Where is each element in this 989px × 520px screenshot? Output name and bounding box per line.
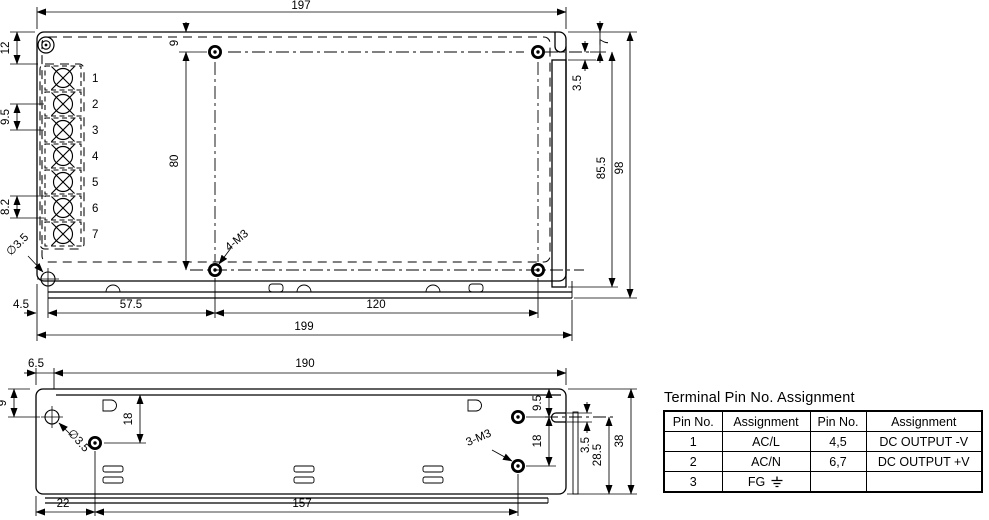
pin-no-cell: 1 [664, 432, 722, 452]
hook-tab [469, 284, 483, 292]
d-hole [468, 400, 482, 411]
vent-slot [423, 477, 443, 483]
corner-hole-label: ∅3.5 [4, 231, 31, 258]
header-pin-no: Pin No. [810, 411, 866, 432]
dim-hole-gap-right: 18 [532, 435, 544, 448]
mechanical-drawing-page: 1 2 3 4 5 6 7 197 12 [0, 0, 989, 520]
dim-body-height: 85.5 [596, 157, 608, 179]
dim-hole-span-v: 80 [169, 155, 181, 168]
terminal-number: 7 [92, 229, 98, 241]
terminal-number: 4 [92, 151, 99, 163]
pin-no-cell: 6,7 [810, 452, 866, 472]
vent-slot [294, 477, 314, 483]
bracket-strip [573, 412, 578, 494]
dim-hole-bottom: 28.5 [592, 444, 604, 466]
dim-hole-left: 57.5 [120, 299, 142, 311]
terminal-number: 5 [92, 177, 98, 189]
dim-width-bottom: 199 [294, 321, 313, 333]
pin-assignment-table: Terminal Pin No. Assignment Pin No. Assi… [663, 390, 987, 493]
dim-hole-span-h: 120 [366, 299, 385, 311]
earth-ground-icon [770, 476, 784, 488]
tab-bump [426, 285, 440, 292]
dim-terminal-pitch-2: 8.2 [0, 199, 12, 215]
edge-slot-end [552, 413, 557, 422]
terminal-number: 2 [92, 99, 98, 111]
pin-no-cell: 3 [664, 472, 722, 493]
assignment-cell: FG [722, 472, 810, 493]
dim-hole-top: 9 [169, 40, 181, 46]
header-pin-no: Pin No. [664, 411, 722, 432]
case-outline [37, 32, 566, 281]
pin-table-grid: Pin No. Assignment Pin No. Assignment 1 … [663, 410, 983, 493]
pin-table-row: 3 FG [664, 472, 982, 493]
dim-width-top: 197 [291, 0, 310, 12]
terminal-number: 6 [92, 203, 98, 215]
fg-label: FG [748, 475, 765, 489]
dim-left-top: 12 [0, 42, 12, 55]
assignment-cell: AC/L [722, 432, 810, 452]
vent-slot [294, 466, 314, 472]
pin-table-row: 2 AC/N 6,7 DC OUTPUT +V [664, 452, 982, 472]
vent-slot [103, 466, 123, 472]
dim-hole-top-right: 9.5 [532, 395, 544, 411]
top-view: 1 2 3 4 5 6 7 197 12 [0, 0, 637, 341]
vent-slot [103, 477, 123, 483]
dim-height: 38 [614, 435, 626, 448]
assignment-cell [866, 472, 982, 493]
side-view-body [36, 389, 614, 503]
terminal-number: 1 [92, 73, 98, 85]
dim-terminal-pitch: 9.5 [0, 109, 12, 125]
pin-no-cell [810, 472, 866, 493]
header-assignment: Assignment [866, 411, 982, 432]
dim-notch-depth: 7 [599, 39, 611, 45]
d-hole [103, 400, 117, 411]
pin-no-cell: 4,5 [810, 432, 866, 452]
tab-bump [297, 285, 311, 292]
assignment-cell: DC OUTPUT +V [866, 452, 982, 472]
vent-slot [423, 466, 443, 472]
hook-tab [269, 284, 283, 292]
mounting-holes-label: 4-M3 [223, 228, 251, 254]
tab-bump [106, 285, 120, 292]
dim-notch-gap: 3.5 [572, 75, 584, 91]
side-view: 6.5 190 9 18 ∅3.5 3-M3 9.5 18 [0, 358, 637, 516]
notch-slot-end [555, 47, 566, 53]
pin-no-cell: 2 [664, 452, 722, 472]
pin-table-header-row: Pin No. Assignment Pin No. Assignment [664, 411, 982, 432]
dim-lip: 6.5 [28, 358, 44, 370]
dim-slot: 3.5 [580, 437, 592, 453]
dim-hole-top-left: 9 [0, 400, 9, 406]
dim-width: 190 [295, 358, 314, 370]
dim-hole-span: 157 [292, 498, 311, 510]
pin-table-row: 1 AC/L 4,5 DC OUTPUT -V [664, 432, 982, 452]
top-view-body: 1 2 3 4 5 6 7 [37, 32, 590, 298]
mounting-holes-label: 3-M3 [464, 428, 493, 449]
dim-foot: 4.5 [13, 299, 29, 311]
pin-table-title: Terminal Pin No. Assignment [664, 390, 987, 406]
hole-dia-label: ∅3.5 [65, 427, 91, 454]
assignment-cell: AC/N [722, 452, 810, 472]
assignment-cell: DC OUTPUT -V [866, 432, 982, 452]
case-inner-dashed [42, 37, 550, 262]
side-outline [36, 389, 566, 494]
header-assignment: Assignment [722, 411, 810, 432]
dim-hole-left: 22 [57, 498, 70, 510]
dim-hole-drop-left: 18 [123, 413, 135, 426]
dim-height: 98 [614, 162, 626, 175]
side-rail [552, 60, 566, 287]
terminal-number: 3 [92, 125, 98, 137]
